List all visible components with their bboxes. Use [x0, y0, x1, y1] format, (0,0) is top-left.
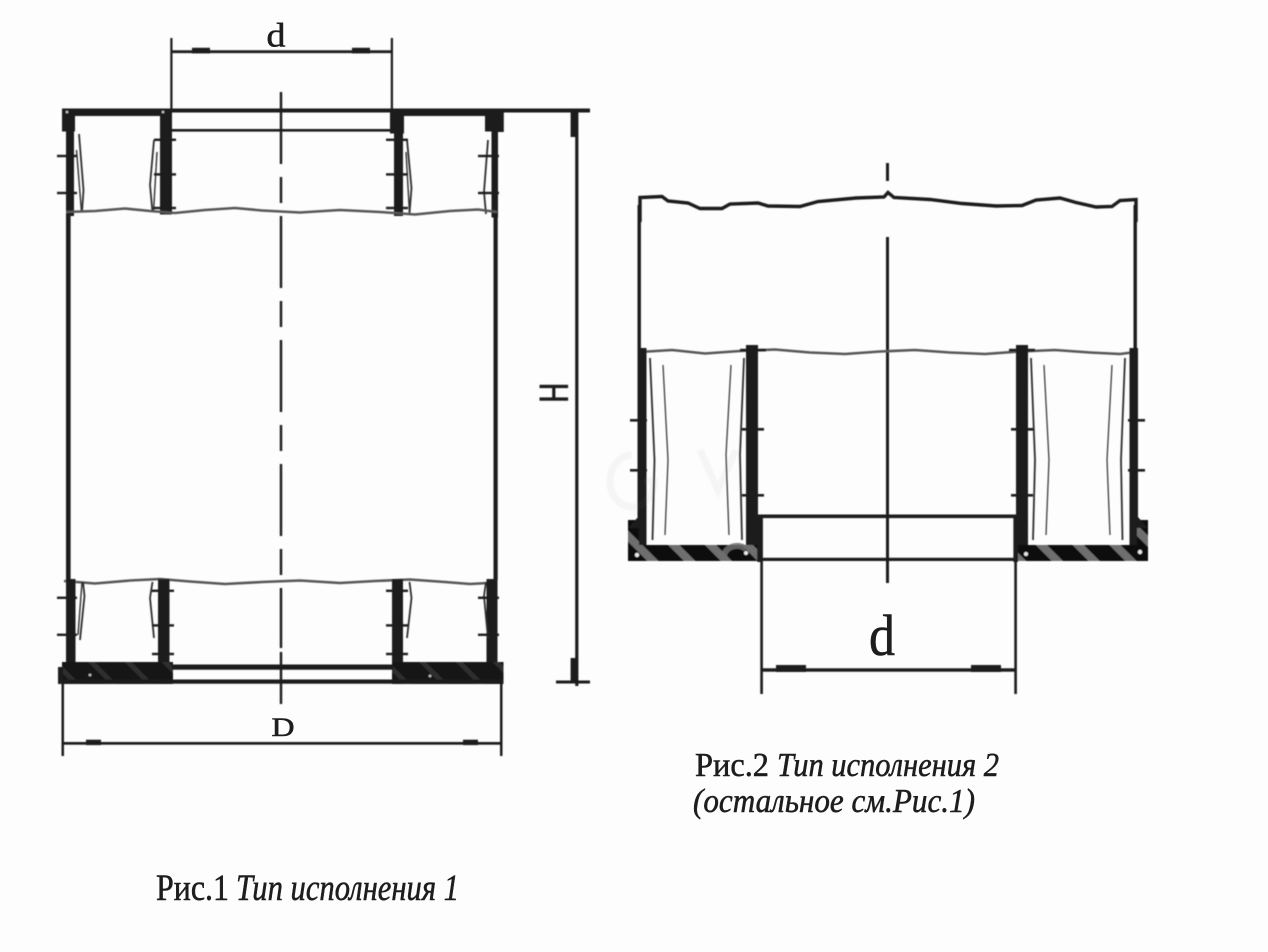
- svg-text:d: d: [869, 603, 895, 668]
- svg-text:Тип исполнения 1: Тип исполнения 1: [236, 868, 459, 909]
- svg-text:Тип исполнения 2: Тип исполнения 2: [777, 747, 999, 784]
- svg-text:d: d: [267, 18, 286, 55]
- svg-text:Рис.1: Рис.1: [156, 868, 229, 909]
- svg-text:D: D: [272, 713, 295, 742]
- svg-text:Рис.2: Рис.2: [695, 747, 769, 784]
- svg-text:(остальное см.Рис.1): (остальное см.Рис.1): [693, 783, 975, 820]
